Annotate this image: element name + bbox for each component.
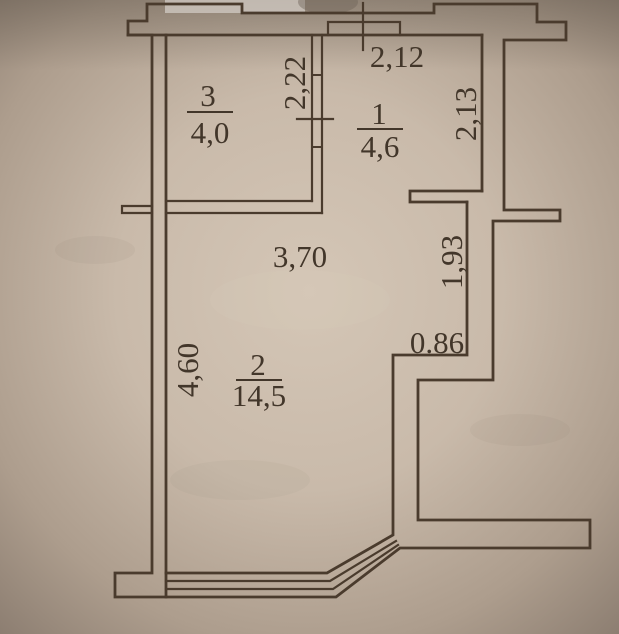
room-1-number: 1 [371, 96, 387, 131]
room-3-number: 3 [200, 78, 216, 113]
dim-top-width: 2,12 [370, 39, 424, 74]
room-2-area: 14,5 [232, 378, 286, 413]
floorplan-svg: 3 4,0 1 4,6 2 14,5 2,12 3,70 0.86 2,22 2… [0, 0, 619, 634]
dim-partition-height: 2,22 [277, 56, 312, 110]
dim-room2-right-step: 0.86 [410, 325, 464, 360]
dim-room2-top-width: 3,70 [273, 239, 327, 274]
dim-room1-right-height: 2,13 [448, 87, 483, 141]
floorplan-photo: 3 4,0 1 4,6 2 14,5 2,12 3,70 0.86 2,22 2… [0, 0, 619, 634]
room-2-number: 2 [250, 347, 266, 382]
room-3-area: 4,0 [191, 115, 230, 150]
room-1-area: 4,6 [361, 129, 400, 164]
dim-room2-right-upper: 1,93 [434, 235, 469, 289]
dim-room2-left-height: 4,60 [170, 343, 205, 397]
photo-light-strip [165, 0, 305, 13]
